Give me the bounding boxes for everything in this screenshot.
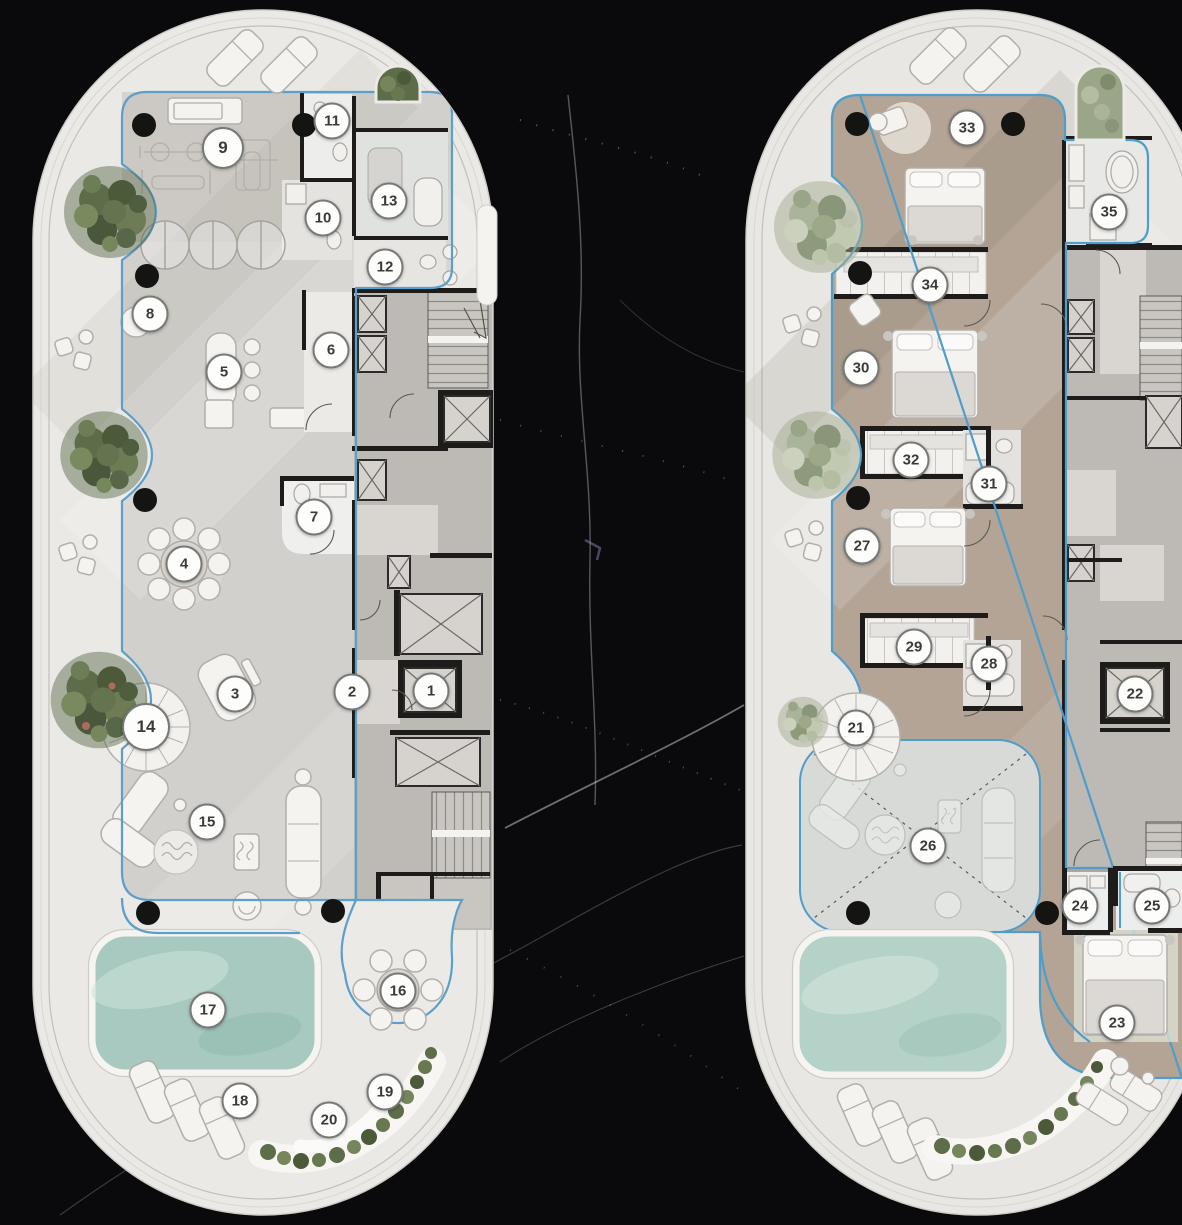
plan-marker-5: 5 xyxy=(206,354,243,391)
plan-marker-27: 27 xyxy=(844,528,881,565)
plan-marker-31: 31 xyxy=(971,466,1008,503)
plan-marker-16: 16 xyxy=(380,973,417,1010)
plan-marker-29: 29 xyxy=(896,629,933,666)
plan-marker-8: 8 xyxy=(132,296,169,333)
plan-marker-24: 24 xyxy=(1062,888,1099,925)
plan-marker-23: 23 xyxy=(1099,1005,1136,1042)
plan-marker-10: 10 xyxy=(305,200,342,237)
plan-marker-19: 19 xyxy=(367,1074,404,1111)
plan-marker-30: 30 xyxy=(843,350,880,387)
plan-marker-33: 33 xyxy=(949,110,986,147)
plan-marker-2: 2 xyxy=(334,674,371,711)
plan-marker-25: 25 xyxy=(1134,888,1171,925)
plan-marker-13: 13 xyxy=(371,183,408,220)
floor-plan-canvas: 1234567891011121314151617181920212223242… xyxy=(0,0,1182,1225)
plan-marker-6: 6 xyxy=(313,332,350,369)
plan-marker-15: 15 xyxy=(189,804,226,841)
plan-marker-32: 32 xyxy=(893,442,930,479)
plan-marker-28: 28 xyxy=(971,646,1008,683)
plan-marker-1: 1 xyxy=(413,673,450,710)
plan-marker-3: 3 xyxy=(217,676,254,713)
marker-layer: 1234567891011121314151617181920212223242… xyxy=(0,0,1182,1225)
plan-marker-20: 20 xyxy=(311,1102,348,1139)
plan-marker-22: 22 xyxy=(1117,676,1154,713)
plan-marker-14: 14 xyxy=(122,703,170,751)
plan-marker-35: 35 xyxy=(1091,194,1128,231)
plan-marker-9: 9 xyxy=(202,127,244,169)
plan-marker-26: 26 xyxy=(910,828,947,865)
plan-marker-17: 17 xyxy=(190,992,227,1029)
plan-marker-18: 18 xyxy=(222,1083,259,1120)
plan-marker-12: 12 xyxy=(367,249,404,286)
plan-marker-4: 4 xyxy=(166,546,203,583)
plan-marker-34: 34 xyxy=(912,267,949,304)
plan-marker-21: 21 xyxy=(838,710,875,747)
plan-marker-7: 7 xyxy=(296,499,333,536)
plan-marker-11: 11 xyxy=(314,103,351,140)
